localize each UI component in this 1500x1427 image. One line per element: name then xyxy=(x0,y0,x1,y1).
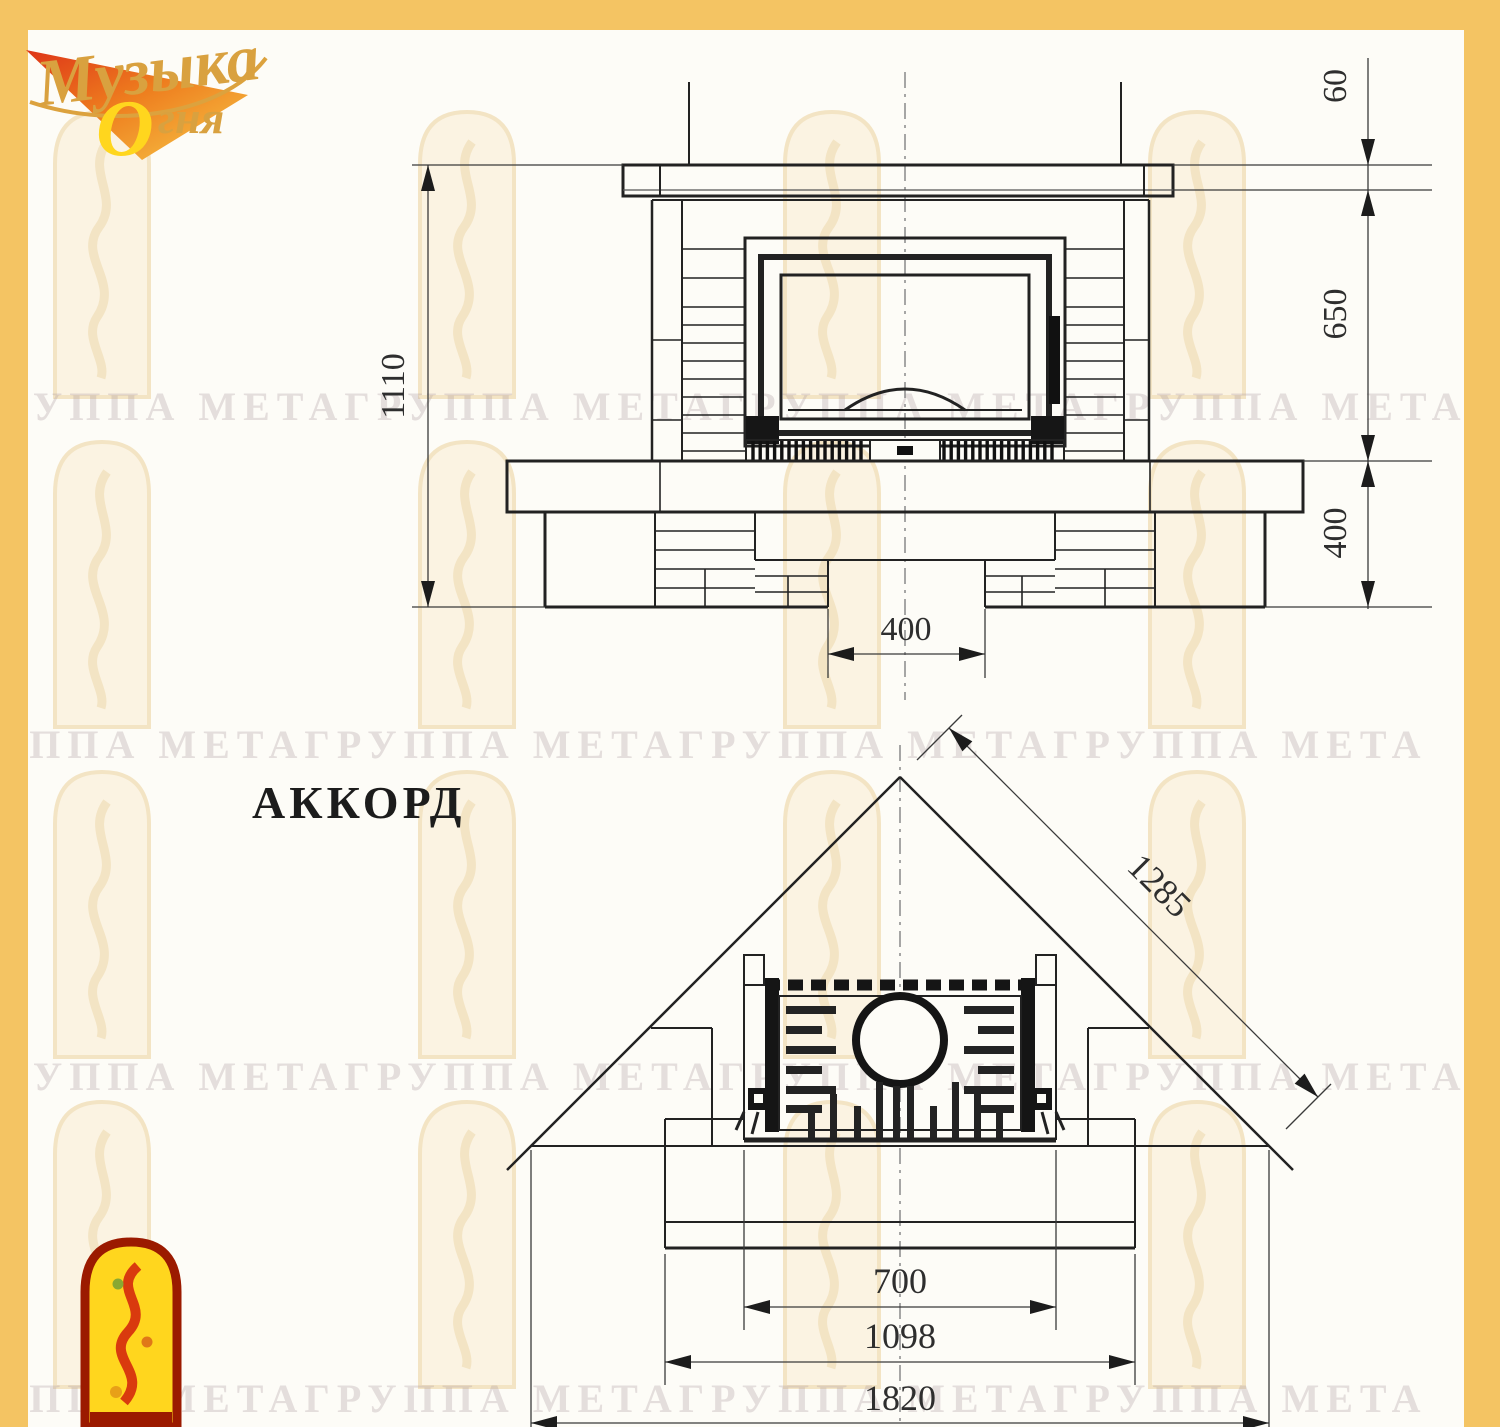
dim-label-upper-section: 650 xyxy=(1317,289,1354,340)
watermark-text-rows: ГРУППА МЕТАГРУППА МЕТАГРУППА МЕТАГРУППА … xyxy=(0,384,1467,1421)
dim-label-firebox-opening: 700 xyxy=(873,1261,927,1301)
emblem-dot-green xyxy=(113,1279,124,1290)
dim-label-base-section: 400 xyxy=(1317,508,1354,559)
mantel-shelf xyxy=(623,165,1173,196)
flue-outlet-circle xyxy=(856,996,944,1084)
emblem-dot-amber xyxy=(110,1386,122,1398)
logo-word-ognya-rest: гня xyxy=(158,92,224,143)
dim-label-total-height: 1110 xyxy=(375,353,412,418)
model-title: АККОРД xyxy=(252,777,465,828)
watermark-arch-icon xyxy=(55,442,149,727)
watermark-arch-icon xyxy=(1150,1102,1244,1387)
dim-label-overall-width: 1820 xyxy=(864,1378,936,1418)
dim-label-body-width: 1098 xyxy=(864,1316,936,1356)
watermark-arch-icon xyxy=(1150,112,1244,397)
watermark-arch-icon xyxy=(55,772,149,1057)
watermark-text: ГРУППА МЕТАГРУППА МЕТАГРУППА МЕТАГРУППА … xyxy=(0,722,1427,767)
watermark-text: ГРУППА МЕТАГРУППА МЕТАГРУППА МЕТАГРУППА … xyxy=(0,1376,1427,1421)
dim-line-1285 xyxy=(949,728,1318,1097)
door-handle xyxy=(1049,316,1060,404)
page-frame xyxy=(0,0,1500,1427)
watermark-arch-icon xyxy=(420,442,514,727)
brand-emblem xyxy=(85,1242,177,1427)
vent-grille-center-tick xyxy=(897,446,913,455)
emblem-base-band xyxy=(90,1412,172,1423)
front-view-dimensions xyxy=(412,58,1432,678)
watermark-arch-icon xyxy=(1150,442,1244,727)
dim-label-shelf-thickness: 60 xyxy=(1317,69,1354,103)
watermark-text: ГРУППА МЕТАГРУППА МЕТАГРУППА МЕТАГРУППА … xyxy=(0,384,1467,429)
watermark-arch-icon xyxy=(420,1102,514,1387)
frame-strip-left xyxy=(0,0,28,1427)
emblem-dot-orange xyxy=(142,1337,153,1348)
watermark-text: ГРУППА МЕТАГРУППА МЕТАГРУППА МЕТАГРУППА … xyxy=(0,1054,1467,1099)
watermark-arch-icon xyxy=(420,112,514,397)
logo-letter-o: О xyxy=(96,85,154,173)
frame-strip-right xyxy=(1464,28,1500,1427)
page-canvas: ГРУППА МЕТАГРУППА МЕТАГРУППА МЕТАГРУППА … xyxy=(0,0,1500,1427)
watermark-arch-icon xyxy=(785,442,879,727)
technical-drawing-sheet: ГРУППА МЕТАГРУППА МЕТАГРУППА МЕТАГРУППА … xyxy=(0,0,1500,1427)
dim-label-bottom-opening: 400 xyxy=(881,611,932,648)
